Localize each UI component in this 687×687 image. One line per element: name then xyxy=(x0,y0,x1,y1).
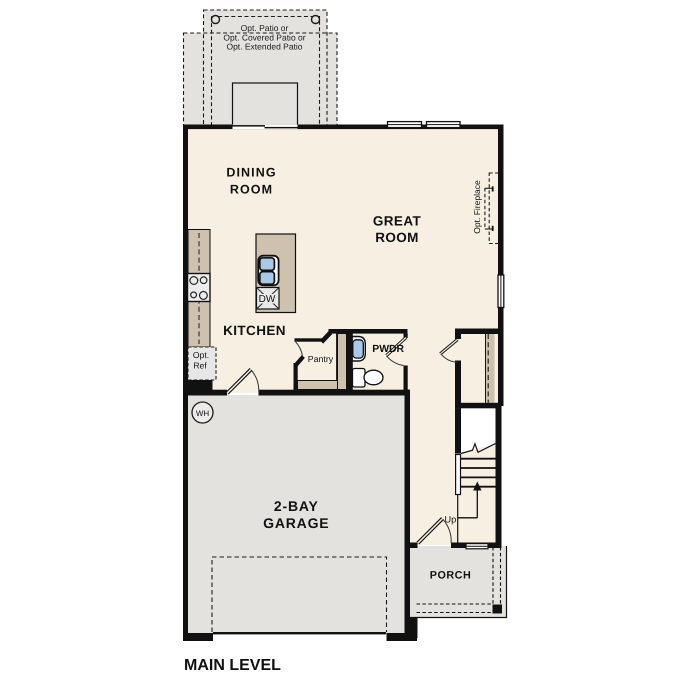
svg-text:ROOM: ROOM xyxy=(375,230,419,245)
svg-text:2-BAY: 2-BAY xyxy=(274,498,319,514)
svg-text:GARAGE: GARAGE xyxy=(263,515,329,531)
svg-text:DW: DW xyxy=(259,294,276,305)
svg-text:Ref: Ref xyxy=(193,360,207,370)
svg-text:WH: WH xyxy=(196,409,210,418)
svg-text:MAIN LEVEL: MAIN LEVEL xyxy=(184,657,281,674)
svg-text:KITCHEN: KITCHEN xyxy=(223,323,286,338)
svg-text:Opt.: Opt. xyxy=(193,350,209,360)
svg-text:Pantry: Pantry xyxy=(308,354,334,364)
svg-text:PORCH: PORCH xyxy=(430,570,472,582)
svg-text:ROOM: ROOM xyxy=(230,182,273,196)
svg-text:Opt. Extended Patio: Opt. Extended Patio xyxy=(226,41,302,51)
svg-text:Opt. Fireplace: Opt. Fireplace xyxy=(472,180,482,234)
svg-text:DINING: DINING xyxy=(226,165,276,179)
svg-text:GREAT: GREAT xyxy=(373,214,422,229)
svg-text:PWDR: PWDR xyxy=(372,344,404,355)
